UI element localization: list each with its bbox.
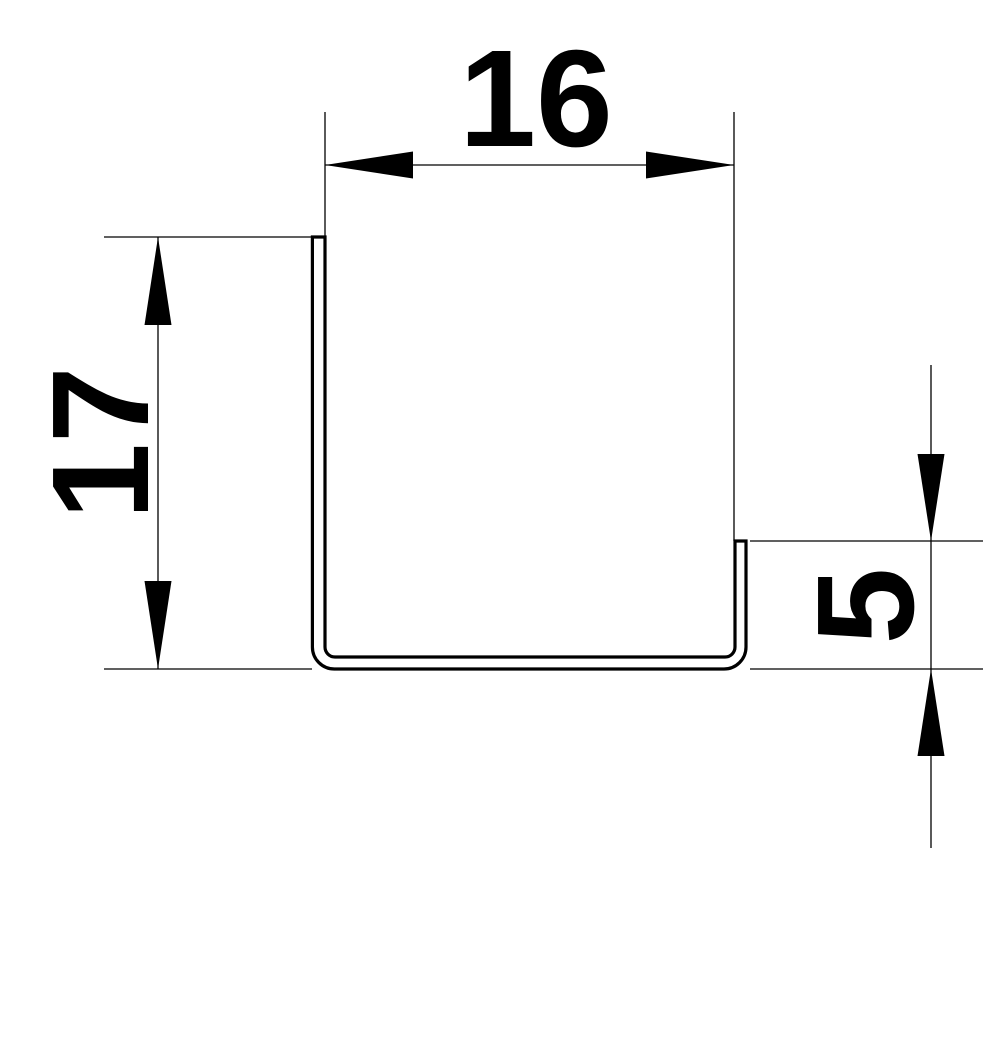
- flange-dimension-value: 5: [789, 568, 943, 645]
- technical-drawing-svg: 16 17 5: [0, 0, 1008, 1048]
- width-dimension-value: 16: [459, 22, 613, 176]
- height-dimension-value: 17: [24, 366, 178, 520]
- drawing-canvas: 16 17 5: [0, 0, 1008, 1048]
